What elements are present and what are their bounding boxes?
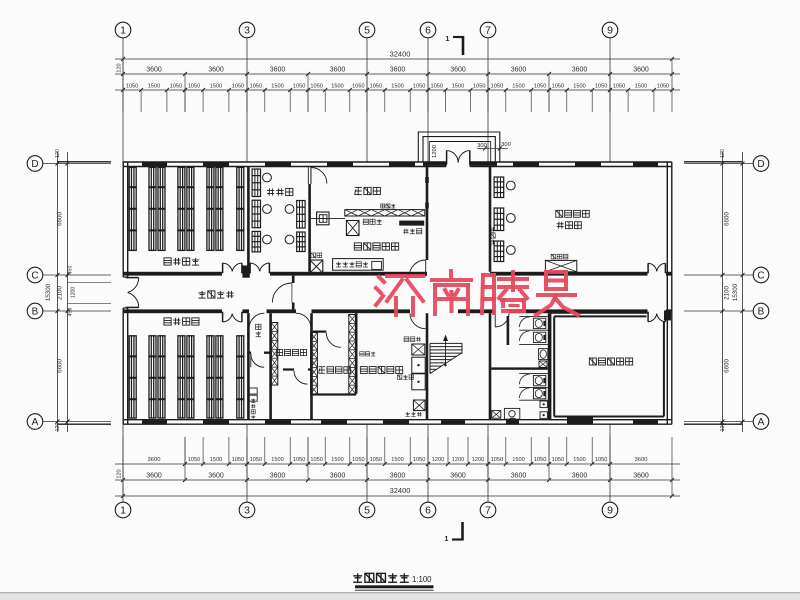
svg-text:1500: 1500 [512,457,524,463]
svg-text:1050: 1050 [126,84,138,90]
svg-text:1500: 1500 [391,457,403,463]
svg-text:1050: 1050 [293,457,305,463]
svg-text:1050: 1050 [552,457,564,463]
svg-text:3600: 3600 [572,473,588,480]
svg-text:7: 7 [485,25,491,37]
svg-text:3600: 3600 [633,473,649,480]
svg-text:1050: 1050 [613,84,625,90]
svg-text:3: 3 [244,505,250,517]
svg-text:3600: 3600 [450,473,466,480]
svg-text:1200: 1200 [432,145,438,158]
svg-text:C: C [757,271,764,282]
svg-text:6600: 6600 [724,359,731,373]
svg-text:C: C [31,271,38,282]
svg-text:6600: 6600 [57,212,64,226]
svg-text:1500: 1500 [331,457,343,463]
svg-text:1500: 1500 [635,84,647,90]
svg-text:1500: 1500 [148,84,160,90]
svg-text:1200: 1200 [472,457,484,463]
svg-text:5: 5 [364,505,370,517]
svg-text:A: A [758,417,765,428]
svg-text:9: 9 [607,25,613,37]
svg-text:2100: 2100 [724,286,731,300]
svg-text:1500: 1500 [391,84,403,90]
svg-text:1: 1 [120,505,126,517]
svg-text:1050: 1050 [473,84,485,90]
svg-text:1050: 1050 [352,84,364,90]
svg-text:32400: 32400 [390,486,411,495]
svg-text:1: 1 [120,25,126,37]
svg-text:1500: 1500 [573,457,585,463]
svg-text:1050: 1050 [232,457,244,463]
svg-text:1500: 1500 [452,84,464,90]
svg-text:1050: 1050 [310,457,322,463]
svg-text:3600: 3600 [633,67,649,74]
svg-text:3600: 3600 [330,473,346,480]
svg-text:1050: 1050 [552,84,564,90]
svg-text:32400: 32400 [390,50,411,59]
svg-text:1200: 1200 [432,457,444,463]
svg-text:3600: 3600 [511,67,527,74]
svg-text:3600: 3600 [148,457,161,463]
svg-text:1050: 1050 [352,457,364,463]
svg-text:1050: 1050 [413,84,425,90]
svg-text:1500: 1500 [573,84,585,90]
svg-text:3600: 3600 [635,457,648,463]
svg-text:B: B [758,307,765,318]
svg-text:1: 1 [446,36,450,43]
svg-text:15300: 15300 [45,283,52,301]
svg-text:1050: 1050 [370,457,382,463]
svg-text:450: 450 [68,266,74,275]
svg-text:1050: 1050 [188,457,200,463]
svg-text:1050: 1050 [595,84,607,90]
svg-text:3600: 3600 [572,67,588,74]
svg-text:6600: 6600 [724,212,731,226]
svg-text:3600: 3600 [146,473,162,480]
svg-text:1050: 1050 [188,84,200,90]
svg-text:120: 120 [55,149,61,158]
svg-text:1050: 1050 [310,84,322,90]
svg-text:120: 120 [720,149,726,158]
svg-text:1050: 1050 [293,84,305,90]
svg-text:120: 120 [117,469,123,478]
svg-text:1200: 1200 [71,287,77,299]
svg-text:1050: 1050 [170,84,182,90]
svg-text:1: 1 [445,536,449,543]
svg-text:15300: 15300 [732,283,739,301]
svg-text:3600: 3600 [146,67,162,74]
svg-text:3600: 3600 [511,473,527,480]
svg-text:6: 6 [425,505,431,517]
svg-text:D: D [31,159,38,170]
svg-text:300: 300 [501,142,511,148]
svg-text:A: A [32,417,39,428]
svg-text:1050: 1050 [657,84,669,90]
svg-text:3600: 3600 [208,473,224,480]
svg-text:B: B [32,307,39,318]
svg-text:1050: 1050 [491,457,503,463]
svg-text:3600: 3600 [270,473,286,480]
svg-text:1500: 1500 [331,84,343,90]
svg-text:3600: 3600 [330,67,346,74]
svg-text:1050: 1050 [534,84,546,90]
svg-text:1500: 1500 [210,457,222,463]
svg-text:1050: 1050 [534,457,546,463]
svg-text:1500: 1500 [512,84,524,90]
svg-text:1500: 1500 [210,84,222,90]
svg-text:1:100: 1:100 [412,575,432,584]
svg-text:2100: 2100 [57,286,64,300]
svg-text:3600: 3600 [208,67,224,74]
svg-text:1050: 1050 [250,457,262,463]
svg-text:450: 450 [68,308,74,317]
svg-text:1050: 1050 [232,84,244,90]
svg-text:3: 3 [244,25,250,37]
svg-text:1050: 1050 [413,457,425,463]
svg-text:1050: 1050 [250,84,262,90]
svg-text:1500: 1500 [271,457,283,463]
svg-text:D: D [757,159,764,170]
svg-text:1200: 1200 [452,457,464,463]
svg-text:1050: 1050 [595,457,607,463]
svg-text:3600: 3600 [390,67,406,74]
svg-text:1050: 1050 [370,84,382,90]
svg-text:1500: 1500 [271,84,283,90]
svg-text:3600: 3600 [390,473,406,480]
svg-text:120: 120 [117,63,123,72]
svg-text:1050: 1050 [431,84,443,90]
svg-text:6600: 6600 [57,359,64,373]
svg-text:6: 6 [425,25,431,37]
svg-text:5: 5 [364,25,370,37]
svg-text:3600: 3600 [270,67,286,74]
svg-text:1050: 1050 [491,84,503,90]
svg-text:7: 7 [485,505,491,517]
svg-text:9: 9 [607,505,613,517]
svg-text:3600: 3600 [450,67,466,74]
